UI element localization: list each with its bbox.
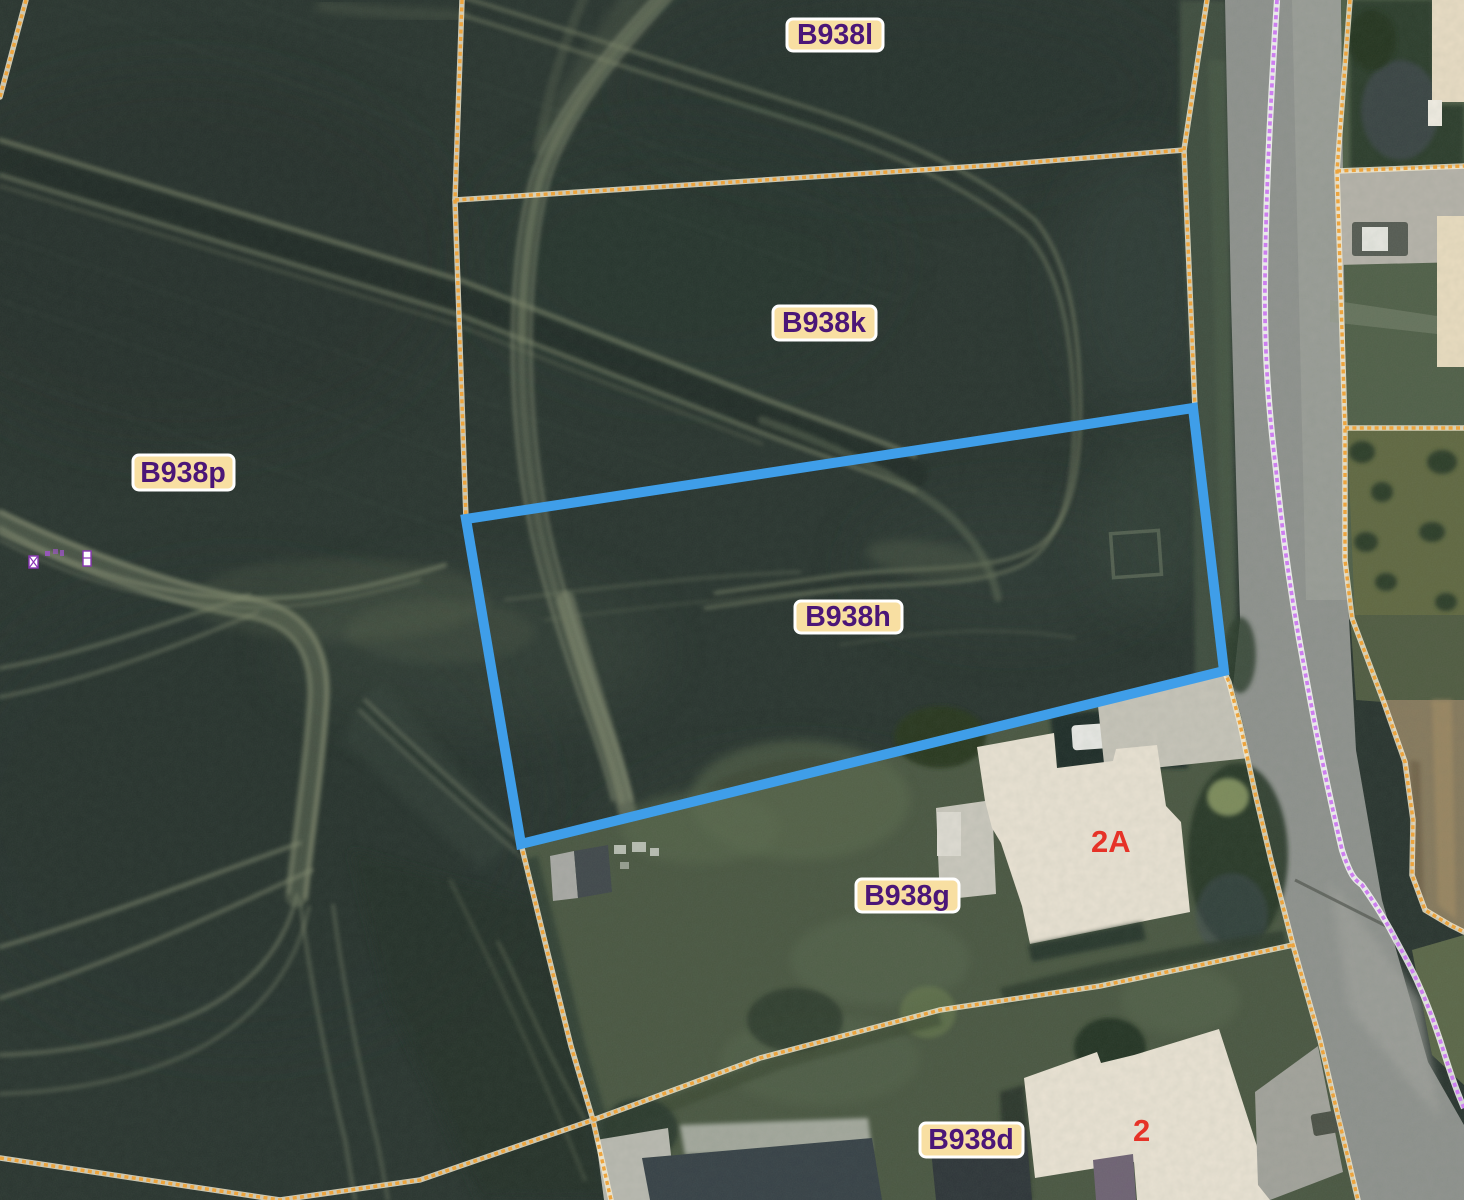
svg-text:2: 2 xyxy=(1133,1113,1150,1148)
svg-text:B938l: B938l xyxy=(797,19,873,51)
svg-text:B938d: B938d xyxy=(928,1124,1014,1156)
svg-text:B938g: B938g xyxy=(864,880,950,912)
svg-text:B938p: B938p xyxy=(140,457,226,489)
svg-text:B938h: B938h xyxy=(805,601,891,633)
svg-text:2A: 2A xyxy=(1091,824,1131,859)
svg-text:B938k: B938k xyxy=(782,307,866,339)
